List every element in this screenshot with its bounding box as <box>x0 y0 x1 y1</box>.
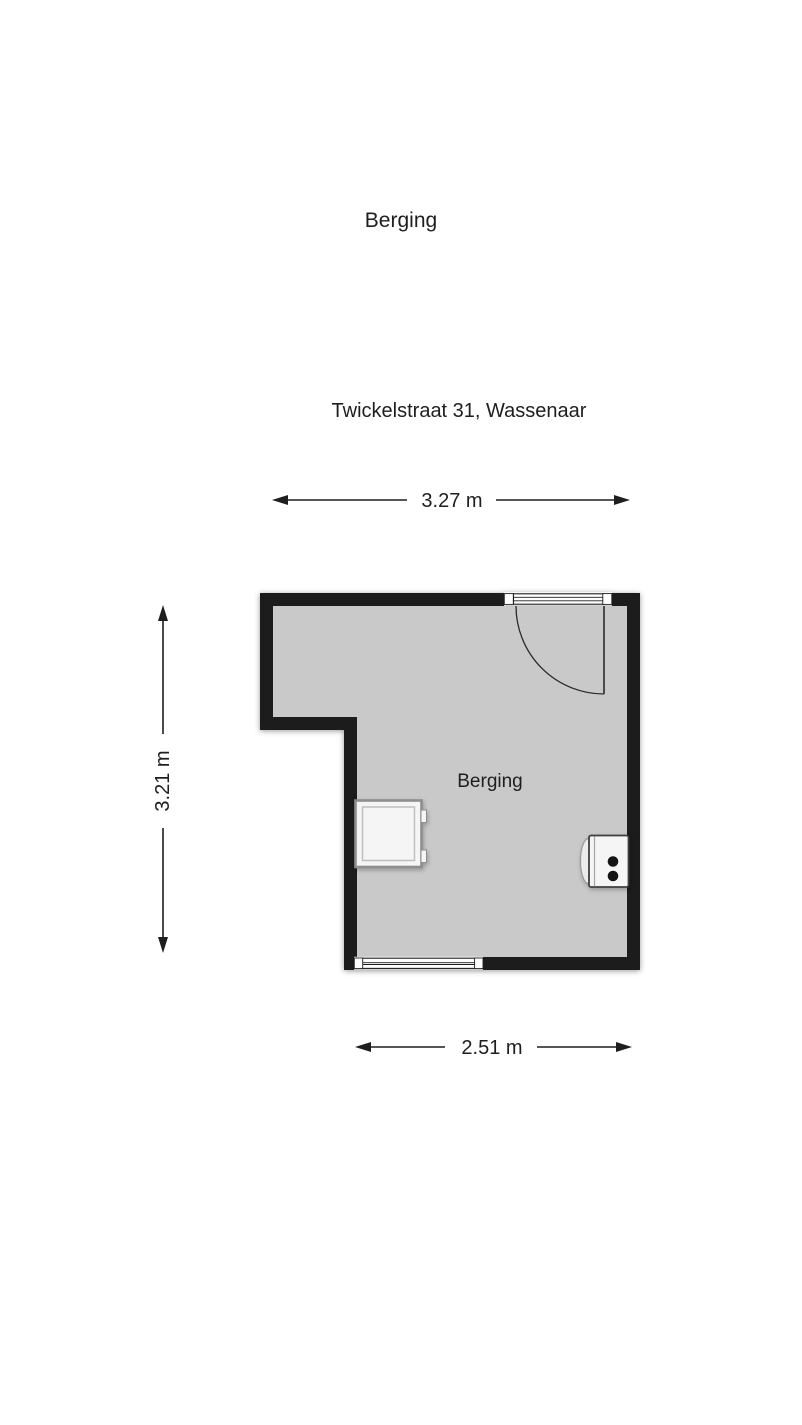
washing-machine <box>356 801 427 868</box>
dimension-bottom-label: 2.51 m <box>461 1037 522 1059</box>
dimension-bottom: 2.51 m <box>355 1037 632 1059</box>
washing-machine-body <box>356 801 422 868</box>
boiler-knob-bottom <box>608 871 619 882</box>
door-jamb-right <box>603 594 612 605</box>
door-glazing <box>514 594 604 604</box>
dimension-left: 3.21 m <box>152 605 174 953</box>
room-floor <box>266 600 634 963</box>
boiler-knob-top <box>608 856 619 867</box>
dimension-left-label: 3.21 m <box>152 750 174 811</box>
washing-machine-hinge-bottom <box>421 850 427 863</box>
room-label: Berging <box>457 771 523 792</box>
window-bottom <box>354 957 483 970</box>
dimension-top: 3.27 m <box>272 490 630 512</box>
dimension-top-label: 3.27 m <box>421 490 482 512</box>
boiler <box>581 836 629 888</box>
page-title: Berging <box>365 209 437 232</box>
floorplan-drawing: Berging Twickelstraat 31, Wassenaar 3.27… <box>0 0 802 1425</box>
arrow-up-icon <box>158 605 168 621</box>
floorplan-page: Berging Twickelstraat 31, Wassenaar 3.27… <box>0 0 802 1425</box>
arrow-right-icon <box>616 1042 632 1052</box>
floor-plan: Berging <box>260 592 640 970</box>
wall-notch <box>260 717 357 730</box>
arrow-right-icon <box>614 495 630 505</box>
window-jamb-left <box>354 958 362 969</box>
arrow-down-icon <box>158 937 168 953</box>
wall-left-upper <box>260 593 273 730</box>
page-address: Twickelstraat 31, Wassenaar <box>332 400 587 422</box>
wall-right <box>627 593 640 970</box>
door-jamb-left <box>504 594 513 605</box>
window-jamb-right <box>475 958 483 969</box>
washing-machine-hinge-top <box>421 810 427 823</box>
window-glazing <box>362 958 475 968</box>
